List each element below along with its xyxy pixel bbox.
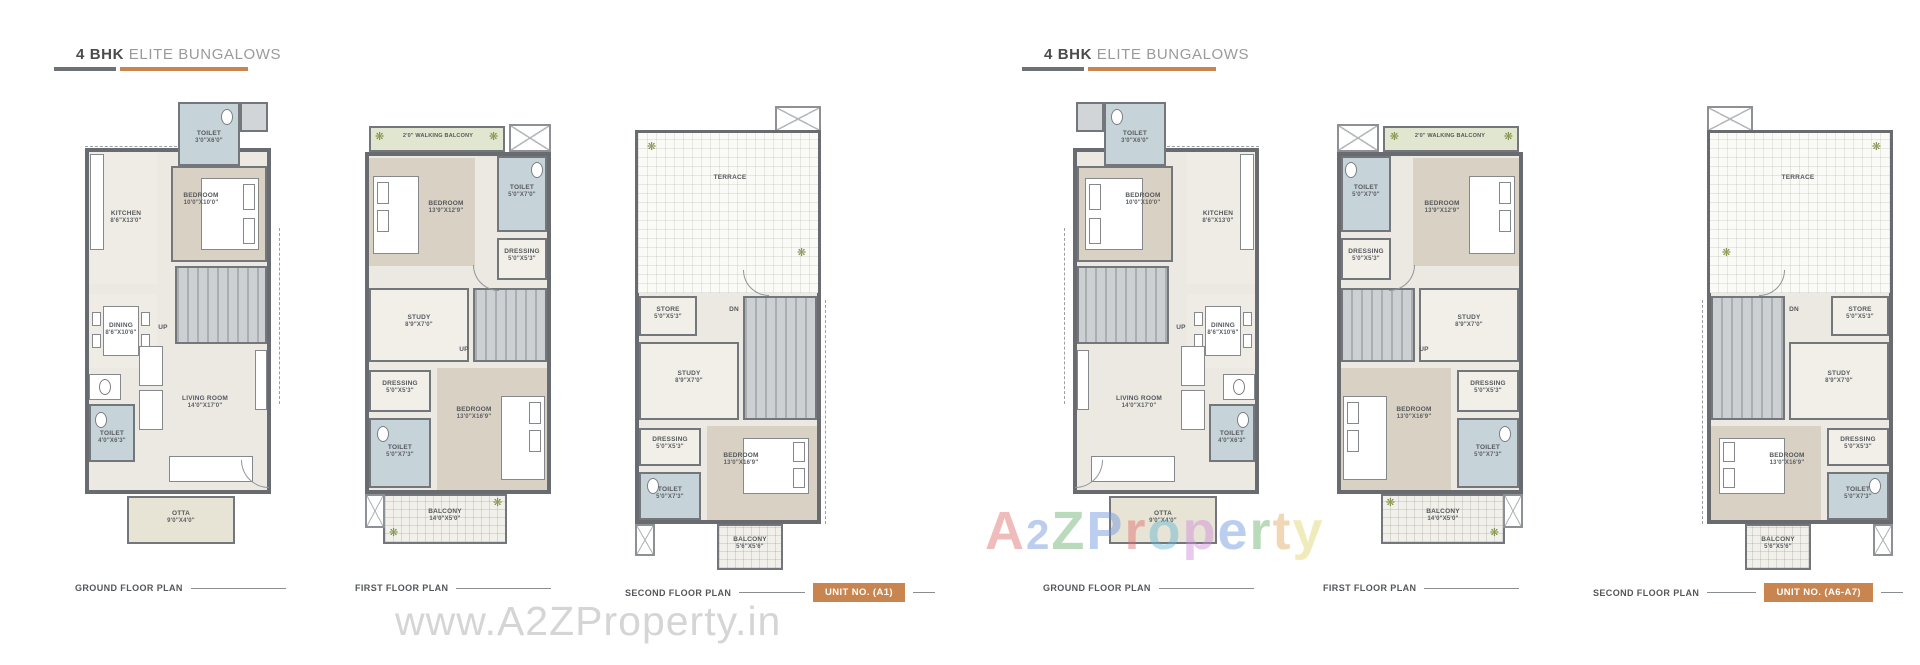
room-label: DINING 8'6"X10'6": [1195, 322, 1251, 338]
pillow-icon: [243, 218, 255, 244]
toilet-icon: [377, 426, 389, 442]
room-terrace: [638, 133, 818, 293]
underline-gray: [54, 67, 116, 71]
pillow-icon: [1499, 182, 1511, 204]
stairs-direction: UP: [455, 346, 473, 354]
room-label: DRESSING 5'0"X5'3": [1341, 248, 1391, 264]
watermark-letter: o: [1147, 500, 1182, 562]
plot-dashed-line: [279, 228, 280, 404]
staircase: [1077, 266, 1169, 344]
pillow-icon: [243, 184, 255, 210]
pillow-icon: [377, 182, 389, 204]
kitchen-counter: [90, 154, 104, 250]
pillow-icon: [377, 210, 389, 232]
room-label: TOILET 3'0"X6'0": [179, 130, 239, 146]
plant-icon: ❋: [389, 528, 398, 539]
plan-canvas-ground: TOILET 3'0"X6'0" KITCHEN 8'6"X13'0" BEDR…: [75, 100, 301, 575]
watermark-letter: Z: [1051, 500, 1086, 562]
floor-plan-second: ❋ ❋ TERRACE STORE 5'0"X5'3" STUDY 8'9"X7…: [1593, 100, 1903, 620]
toilet-icon: [221, 109, 233, 125]
caption-line: [1881, 592, 1903, 593]
plot-dashed-line: [1064, 228, 1065, 404]
room-label: DINING 8'6"X10'6": [93, 322, 149, 338]
basin-icon: [1233, 379, 1245, 395]
room-label: OTTA 9'0"X4'0": [131, 510, 231, 526]
caption-line: [191, 588, 286, 589]
room-label: STUDY 8'9"X7'0": [1433, 314, 1505, 330]
staircase: [473, 288, 547, 362]
open-cutout: [635, 524, 655, 556]
pillow-icon: [1347, 430, 1359, 452]
title-bhk: 4 BHK: [76, 46, 124, 63]
toilet-icon: [95, 412, 107, 428]
room-label: TOILET 5'0"X7'3": [1827, 486, 1889, 502]
room-label: DRESSING 5'0"X5'3": [369, 380, 431, 396]
room-label: LIVING ROOM 14'0"X17'0": [145, 395, 265, 411]
room-label: BEDROOM 13'0"X16'9": [713, 452, 769, 468]
watermark-letter: t: [1273, 500, 1293, 562]
floor-plan-second: ❋ ❋ TERRACE STORE 5'0"X5'3" STUDY 8'9"X7…: [625, 100, 935, 620]
plant-icon: ❋: [647, 142, 656, 153]
pillow-icon: [1723, 442, 1735, 462]
plant-icon: ❋: [1872, 142, 1881, 153]
watermark-letter: A: [985, 500, 1026, 562]
room-label: DRESSING 5'0"X5'3": [497, 248, 547, 264]
room-label: KITCHEN 8'6"X13'0": [97, 210, 155, 226]
pillow-icon: [1723, 468, 1735, 488]
kitchen-counter: [1240, 154, 1254, 250]
room-label: TERRACE: [685, 174, 775, 182]
dashed-line: [85, 146, 177, 147]
pillow-icon: [1347, 402, 1359, 424]
pillow-icon: [1089, 218, 1101, 244]
plan-caption: FIRST FLOOR PLAN: [355, 583, 565, 593]
plant-icon: ❋: [375, 132, 384, 143]
sofa-icon: [1181, 346, 1205, 386]
floor-plan-first: ❋ ❋ 2'0" WALKING BALCONY BEDROOM 13'9"X1…: [1323, 100, 1533, 620]
title-underline: [1022, 67, 1249, 71]
plant-icon: ❋: [797, 248, 806, 259]
caption-line: [1159, 588, 1254, 589]
staircase: [175, 266, 267, 344]
stairs-direction: DN: [725, 306, 743, 314]
underline-orange: [1088, 67, 1216, 71]
staircase: [743, 296, 817, 420]
pillow-icon: [529, 402, 541, 424]
plant-icon: ❋: [489, 132, 498, 143]
shaft: [1076, 102, 1104, 132]
title-bhk: 4 BHK: [1044, 46, 1092, 63]
room-label: BALCONY 5'6"X5'6": [717, 536, 783, 552]
room-label: TOILET 5'0"X7'3": [639, 486, 701, 502]
caption-line: [456, 588, 551, 589]
room-label: TOILET 4'0"X6'3": [1209, 430, 1255, 446]
room-label: BEDROOM 13'9"X12'9": [417, 200, 475, 216]
title-underline: [54, 67, 281, 71]
plan-caption-text: FIRST FLOOR PLAN: [1323, 583, 1416, 593]
room-label: TOILET 3'0"X6'0": [1105, 130, 1165, 146]
open-cutout: [1503, 494, 1523, 528]
caption-line: [1424, 588, 1519, 589]
group-title: 4 BHK ELITE BUNGALOWS: [1044, 46, 1249, 71]
watermark-brand: A2Z Property: [985, 500, 1325, 562]
room-label: BEDROOM 13'9"X12'9": [1413, 200, 1471, 216]
basin-icon: [99, 379, 111, 395]
plant-icon: ❋: [1722, 248, 1731, 259]
plan-canvas-second: ❋ ❋ TERRACE STORE 5'0"X5'3" STUDY 8'9"X7…: [1593, 100, 1903, 575]
shaft: [240, 102, 268, 132]
watermark-letter: P: [1086, 500, 1124, 562]
room-label: DRESSING 5'0"X5'3": [1827, 436, 1889, 452]
stairs-direction: UP: [1415, 346, 1433, 354]
watermark-letter: e: [1217, 500, 1249, 562]
room-label: BEDROOM 13'0"X16'9": [1385, 406, 1443, 422]
pillow-icon: [1499, 210, 1511, 232]
room-label: DRESSING 5'0"X5'3": [639, 436, 701, 452]
room-label: BEDROOM 13'0"X16'9": [1759, 452, 1815, 468]
staircase: [1711, 296, 1785, 420]
plot-dashed-line: [1702, 300, 1703, 524]
plan-caption: GROUND FLOOR PLAN: [75, 583, 301, 593]
staircase: [1341, 288, 1415, 362]
sofa-icon: [1091, 456, 1175, 482]
room-label: TOILET 5'0"X7'3": [1457, 444, 1519, 460]
open-cutout: [775, 106, 821, 132]
room-label: BEDROOM 13'0"X16'9": [445, 406, 503, 422]
pillow-icon: [793, 468, 805, 488]
bungalow-group: 4 BHK ELITE BUNGALOWS TOILET 3'0"X6'0": [1028, 0, 1908, 665]
room-label: STORE 5'0"X5'3": [1831, 306, 1889, 322]
room-label: STUDY 8'9"X7'0": [653, 370, 725, 386]
open-cutout: [509, 124, 551, 152]
toilet-icon: [1111, 109, 1123, 125]
caption-line: [739, 592, 805, 593]
room-label: DRESSING 5'0"X5'3": [1457, 380, 1519, 396]
open-cutout: [1707, 106, 1753, 132]
room-label: STORE 5'0"X5'3": [639, 306, 697, 322]
plan-caption: GROUND FLOOR PLAN: [1043, 583, 1269, 593]
toilet-icon: [1499, 426, 1511, 442]
room-label: TOILET 4'0"X6'3": [89, 430, 135, 446]
plan-caption-text: SECOND FLOOR PLAN: [1593, 588, 1699, 598]
sofa-icon: [139, 346, 163, 386]
watermark-letter: p: [1182, 500, 1217, 562]
pillow-icon: [1089, 184, 1101, 210]
room-label: BEDROOM 10'0"X10'0": [1115, 192, 1171, 208]
room-label: BALCONY 5'6"X5'6": [1745, 536, 1811, 552]
room-label: TOILET 5'0"X7'0": [1341, 184, 1391, 200]
room-label: TERRACE: [1753, 174, 1843, 182]
room-label: KITCHEN 8'6"X13'0": [1189, 210, 1247, 226]
plant-icon: ❋: [1490, 528, 1499, 539]
caption-line: [913, 592, 935, 593]
plant-icon: ❋: [1390, 132, 1399, 143]
unit-number-badge: UNIT NO. (A1): [813, 583, 905, 602]
toilet-icon: [1345, 162, 1357, 178]
open-cutout: [1873, 524, 1893, 556]
plan-caption-text: GROUND FLOOR PLAN: [1043, 583, 1151, 593]
watermark-url: www.A2ZProperty.in: [395, 598, 781, 645]
toilet-icon: [1237, 412, 1249, 428]
title-rest: ELITE BUNGALOWS: [129, 46, 281, 63]
underline-gray: [1022, 67, 1084, 71]
underline-orange: [120, 67, 248, 71]
room-label: TOILET 5'0"X7'3": [369, 444, 431, 460]
room-label: 2'0" WALKING BALCONY: [1399, 133, 1501, 140]
floor-plan-first: ❋ ❋ 2'0" WALKING BALCONY BEDROOM 13'9"X1…: [355, 100, 565, 620]
room-terrace: [1710, 133, 1890, 293]
toilet-icon: [531, 162, 543, 178]
floor-plan-ground: TOILET 3'0"X6'0" KITCHEN 8'6"X13'0" BEDR…: [75, 100, 301, 620]
watermark-letter: r: [1124, 500, 1147, 562]
watermark-letter: 2: [1026, 511, 1051, 559]
open-cutout: [1337, 124, 1379, 152]
group-title: 4 BHK ELITE BUNGALOWS: [76, 46, 281, 71]
room-label: BALCONY 14'0"X5'0": [395, 508, 495, 524]
plot-dashed-line: [825, 300, 826, 524]
plan-canvas-first: ❋ ❋ 2'0" WALKING BALCONY BEDROOM 13'9"X1…: [1323, 100, 1533, 575]
bungalow-group: 4 BHK ELITE BUNGALOWS TOILET 3'0"X6'0": [60, 0, 940, 665]
unit-number-badge: UNIT NO. (A6-A7): [1764, 583, 1873, 602]
plan-caption: SECOND FLOOR PLAN UNIT NO. (A6-A7): [1593, 583, 1903, 602]
room-label: LIVING ROOM 14'0"X17'0": [1079, 395, 1199, 411]
plan-caption-text: GROUND FLOOR PLAN: [75, 583, 183, 593]
pillow-icon: [529, 430, 541, 452]
pillow-icon: [793, 442, 805, 462]
stairs-direction: DN: [1785, 306, 1803, 314]
room-label: TOILET 5'0"X7'0": [497, 184, 547, 200]
room-label: STUDY 8'9"X7'0": [1803, 370, 1875, 386]
plan-caption-text: FIRST FLOOR PLAN: [355, 583, 448, 593]
plant-icon: ❋: [1504, 132, 1513, 143]
room-label: BALCONY 14'0"X5'0": [1393, 508, 1493, 524]
open-cutout: [365, 494, 385, 528]
plan-canvas-first: ❋ ❋ 2'0" WALKING BALCONY BEDROOM 13'9"X1…: [355, 100, 565, 575]
room-label: BEDROOM 10'0"X10'0": [173, 192, 229, 208]
plan-caption-text: SECOND FLOOR PLAN: [625, 588, 731, 598]
dashed-line: [1167, 146, 1259, 147]
watermark-letter: r: [1250, 500, 1273, 562]
caption-line: [1707, 592, 1756, 593]
room-label: 2'0" WALKING BALCONY: [387, 133, 489, 140]
room-label: STUDY 8'9"X7'0": [383, 314, 455, 330]
watermark-letter: y: [1293, 500, 1325, 562]
plan-canvas-second: ❋ ❋ TERRACE STORE 5'0"X5'3" STUDY 8'9"X7…: [625, 100, 935, 575]
title-rest: ELITE BUNGALOWS: [1097, 46, 1249, 63]
plan-caption: FIRST FLOOR PLAN: [1323, 583, 1533, 593]
brochure-page: 4 BHK ELITE BUNGALOWS TOILET 3'0"X6'0": [0, 0, 1920, 665]
